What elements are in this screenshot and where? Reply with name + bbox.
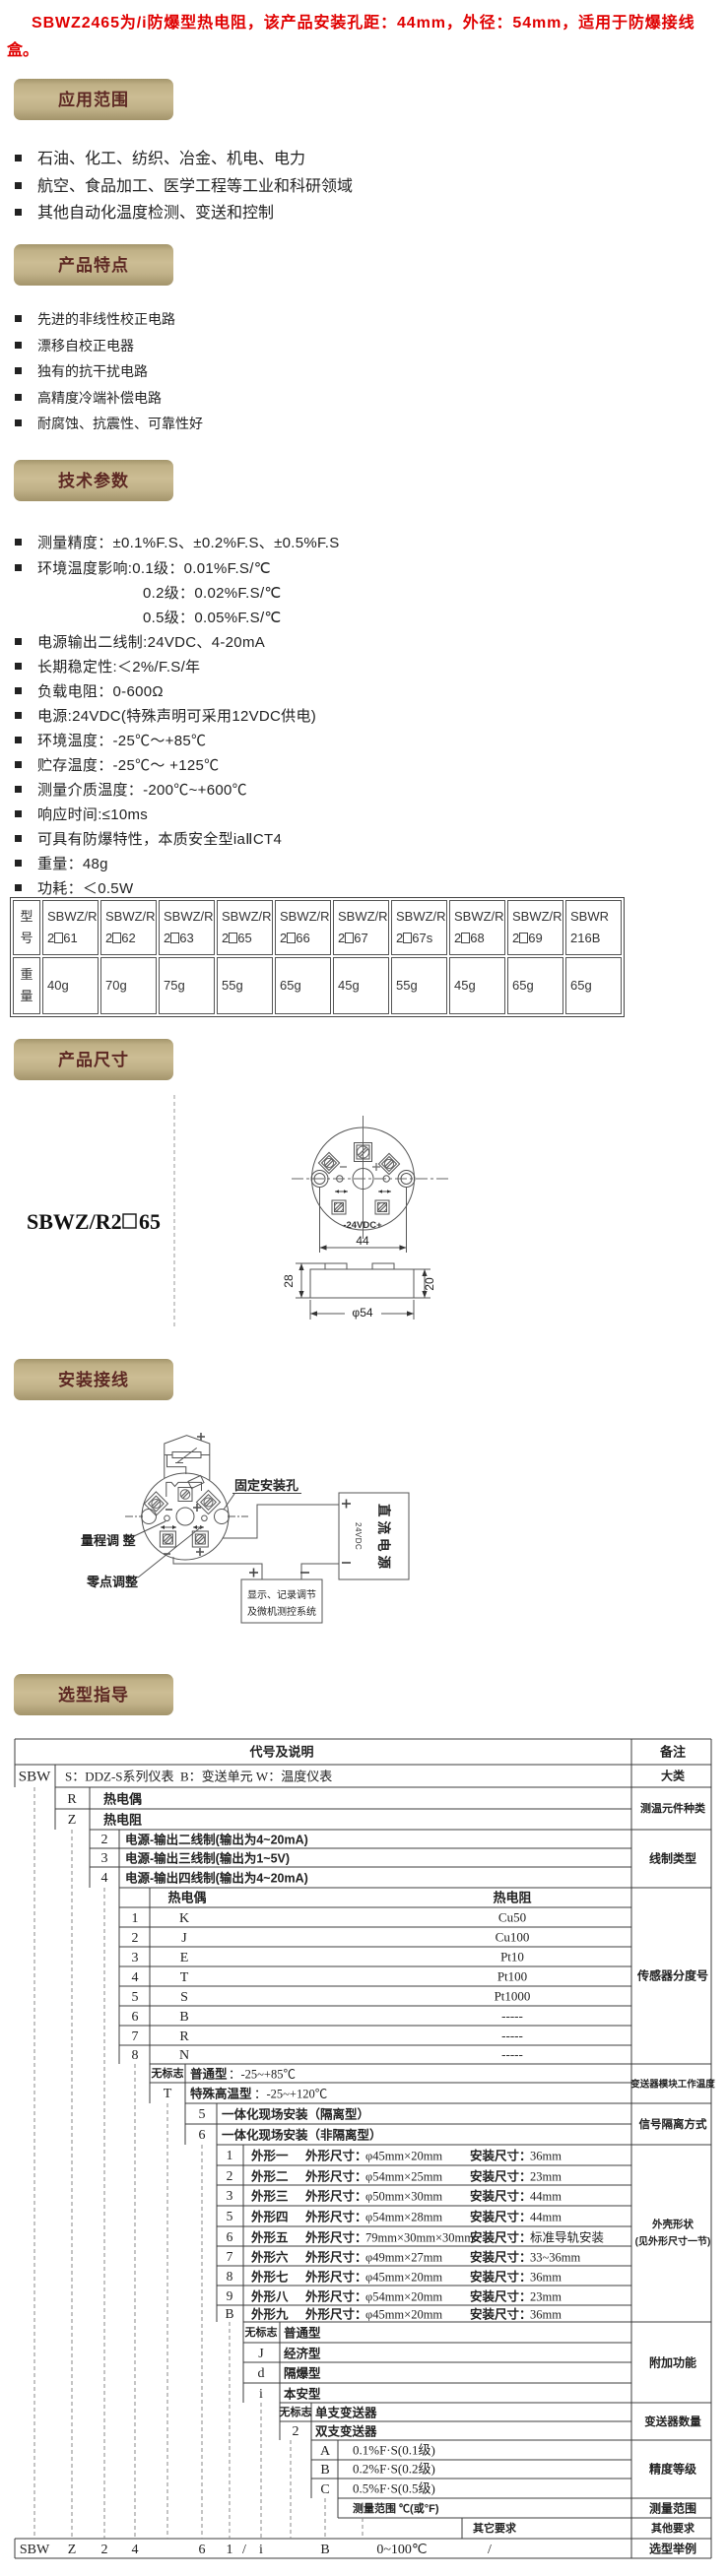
svg-text:安装尺寸：: 安装尺寸： — [470, 2169, 532, 2184]
svg-text:外形尺寸：: 外形尺寸： — [304, 2230, 367, 2245]
svg-text:i: i — [259, 2387, 263, 2402]
svg-text:2: 2 — [101, 1833, 108, 1847]
svg-text:φ49mm×27mm: φ49mm×27mm — [365, 2251, 442, 2265]
svg-text:6: 6 — [199, 2543, 206, 2557]
svg-text:K: K — [179, 1911, 189, 1926]
svg-text:5: 5 — [199, 2107, 206, 2122]
svg-text:显示、记录调节: 显示、记录调节 — [247, 1589, 316, 1601]
svg-text:-----: ----- — [501, 2029, 523, 2043]
svg-text:SBWZ/R2: SBWZ/R2 — [27, 1209, 122, 1234]
svg-text:33~36mm: 33~36mm — [530, 2251, 580, 2265]
svg-text:2: 2 — [227, 2168, 233, 2183]
svg-text:1: 1 — [132, 1911, 139, 1926]
svg-text:φ45mm×20mm: φ45mm×20mm — [365, 2150, 442, 2163]
svg-text:R: R — [67, 1792, 77, 1807]
svg-text:79mm×30mm×30mm: 79mm×30mm×30mm — [365, 2231, 474, 2245]
svg-text:本安型: 本安型 — [284, 2387, 321, 2402]
svg-text:7: 7 — [227, 2249, 233, 2264]
svg-text:1: 1 — [227, 2148, 233, 2162]
svg-text:Pt10: Pt10 — [500, 1950, 524, 1964]
svg-text:附加功能: 附加功能 — [649, 2354, 696, 2369]
svg-text:Z: Z — [68, 1813, 77, 1828]
svg-text:E: E — [180, 1951, 189, 1965]
svg-text:44mm: 44mm — [530, 2211, 562, 2224]
svg-text:φ54mm×28mm: φ54mm×28mm — [365, 2211, 442, 2224]
svg-text:23mm: 23mm — [530, 2290, 562, 2304]
svg-text:C: C — [320, 2482, 329, 2497]
svg-text:2: 2 — [101, 2543, 108, 2557]
svg-text:外形尺寸：: 外形尺寸： — [304, 2210, 367, 2224]
svg-text:0~100℃: 0~100℃ — [376, 2543, 427, 2557]
svg-text:5: 5 — [227, 2209, 233, 2223]
svg-text:65: 65 — [139, 1209, 161, 1234]
svg-text:外形尺寸：: 外形尺寸： — [304, 2307, 367, 2322]
svg-text:1: 1 — [227, 2543, 233, 2557]
svg-text:44mm: 44mm — [530, 2190, 562, 2204]
svg-text:Cu50: Cu50 — [498, 1910, 526, 1925]
svg-text:24VDC: 24VDC — [354, 1522, 363, 1550]
svg-text:外形七: 外形七 — [250, 2270, 289, 2285]
svg-text:T: T — [164, 2087, 172, 2101]
svg-text:安装尺寸：: 安装尺寸： — [470, 2307, 532, 2322]
svg-text:安装尺寸：: 安装尺寸： — [470, 2289, 532, 2304]
svg-text:3: 3 — [101, 1851, 108, 1866]
svg-text:外形尺寸：: 外形尺寸： — [304, 2149, 367, 2163]
svg-text:φ50mm×30mm: φ50mm×30mm — [365, 2190, 442, 2204]
svg-text:选型举例: 选型举例 — [649, 2541, 696, 2555]
svg-text:电源-输出三线制(输出为1~5V): 电源-输出三线制(输出为1~5V) — [125, 1851, 290, 1866]
svg-text:φ54: φ54 — [352, 1306, 372, 1320]
svg-text:外壳形状: 外壳形状 — [651, 2218, 694, 2230]
svg-text:测量范围: 测量范围 — [649, 2500, 696, 2515]
svg-text:量程调 整: 量程调 整 — [81, 1533, 137, 1548]
svg-text:外形尺寸：: 外形尺寸： — [304, 2189, 367, 2204]
svg-text:安装尺寸：: 安装尺寸： — [470, 2189, 532, 2204]
svg-text:-24VDC+: -24VDC+ — [343, 1220, 382, 1231]
svg-text:其他要求: 其他要求 — [651, 2521, 695, 2535]
svg-text:3: 3 — [132, 1951, 139, 1965]
svg-text:外形九: 外形九 — [250, 2307, 289, 2322]
svg-text:Pt100: Pt100 — [497, 1969, 527, 1984]
svg-text:5: 5 — [132, 1990, 139, 2005]
svg-text:0.1%F·S(0.1级): 0.1%F·S(0.1级) — [353, 2443, 435, 2458]
svg-text:B: B — [225, 2306, 233, 2321]
svg-text:外形二: 外形二 — [250, 2169, 289, 2184]
svg-text:热电阻: 热电阻 — [103, 1813, 142, 1828]
svg-text:-----: ----- — [501, 2009, 523, 2024]
svg-text:J: J — [181, 1931, 187, 1946]
svg-text:Cu100: Cu100 — [496, 1930, 530, 1945]
svg-text:-----: ----- — [501, 2047, 523, 2062]
svg-text:：-25~+120℃: ：-25~+120℃ — [254, 2088, 327, 2101]
svg-text:精度等级: 精度等级 — [649, 2461, 696, 2476]
svg-text:固定安装孔: 固定安装孔 — [234, 1478, 298, 1493]
svg-text:外形四: 外形四 — [250, 2210, 289, 2224]
svg-text:d: d — [258, 2366, 265, 2381]
svg-text:备注: 备注 — [659, 1745, 686, 1760]
svg-text:普通型: 普通型 — [284, 2326, 321, 2341]
svg-text:6: 6 — [227, 2229, 233, 2244]
svg-text:无标志: 无标志 — [151, 2066, 184, 2080]
svg-text:一体化现场安装（隔离型）: 一体化现场安装（隔离型） — [222, 2107, 369, 2122]
svg-text:Pt1000: Pt1000 — [495, 1989, 531, 2004]
svg-text:电源-输出四线制(输出为4~20mA): 电源-输出四线制(输出为4~20mA) — [125, 1871, 308, 1886]
svg-text:6: 6 — [132, 2010, 139, 2025]
svg-text:变送器数量: 变送器数量 — [644, 2415, 701, 2428]
svg-text:变送器模块工作温度: 变送器模块工作温度 — [630, 2078, 715, 2090]
svg-text:/: / — [242, 2543, 246, 2557]
svg-text:大类: 大类 — [661, 1768, 686, 1782]
svg-text:经济型: 经济型 — [284, 2347, 321, 2361]
svg-text:i: i — [259, 2543, 263, 2557]
svg-text:热电阻: 热电阻 — [493, 1891, 531, 1905]
svg-text:零点调整: 零点调整 — [86, 1575, 139, 1589]
svg-text:外形三: 外形三 — [250, 2189, 289, 2204]
svg-text:SBW: SBW — [20, 2543, 50, 2557]
svg-text:2: 2 — [132, 1931, 139, 1946]
svg-text:外形尺寸：: 外形尺寸： — [304, 2289, 367, 2304]
svg-text:36mm: 36mm — [530, 2308, 562, 2322]
svg-text:标准导轨安装: 标准导轨安装 — [530, 2230, 604, 2245]
svg-text:23mm: 23mm — [530, 2170, 562, 2184]
svg-text:R: R — [179, 2029, 189, 2044]
svg-text:安装尺寸：: 安装尺寸： — [470, 2149, 532, 2163]
svg-text:φ54mm×20mm: φ54mm×20mm — [365, 2290, 442, 2304]
svg-text:直流电源: 直流电源 — [376, 1504, 392, 1573]
svg-text:及微机测控系统: 及微机测控系统 — [247, 1605, 316, 1618]
svg-text:电源-输出二线制(输出为4~20mA): 电源-输出二线制(输出为4~20mA) — [125, 1833, 308, 1847]
svg-text:4: 4 — [101, 1871, 108, 1886]
svg-text:线制类型: 线制类型 — [649, 1850, 696, 1865]
svg-text:外形五: 外形五 — [250, 2230, 289, 2245]
svg-text:热电偶: 热电偶 — [167, 1891, 206, 1905]
svg-text:8: 8 — [132, 2048, 139, 2063]
svg-text:：-25~+85℃: ：-25~+85℃ — [229, 2068, 296, 2082]
svg-text:SBW: SBW — [19, 1769, 51, 1784]
svg-text:φ45mm×20mm: φ45mm×20mm — [365, 2271, 442, 2285]
svg-text:9: 9 — [227, 2288, 233, 2303]
svg-text:外形尺寸：: 外形尺寸： — [304, 2169, 367, 2184]
svg-text:测温元件种类: 测温元件种类 — [640, 1801, 706, 1815]
svg-text:φ54mm×25mm: φ54mm×25mm — [365, 2170, 442, 2184]
svg-text:/: / — [488, 2543, 492, 2557]
svg-text:44: 44 — [356, 1234, 369, 1248]
svg-text:安装尺寸：: 安装尺寸： — [470, 2230, 532, 2245]
svg-text:测量范围 ℃(或°F): 测量范围 ℃(或°F) — [353, 2501, 439, 2515]
svg-text:20: 20 — [423, 1277, 436, 1291]
svg-text:外形一: 外形一 — [250, 2149, 289, 2163]
svg-text:T: T — [180, 1970, 189, 1985]
svg-text:B: B — [179, 2010, 188, 2025]
svg-text:6: 6 — [199, 2128, 206, 2143]
svg-text:安装尺寸：: 安装尺寸： — [470, 2270, 532, 2285]
svg-text:A: A — [320, 2444, 331, 2459]
svg-text:隔爆型: 隔爆型 — [284, 2366, 321, 2381]
svg-text:热电偶: 热电偶 — [103, 1792, 142, 1807]
svg-text:4: 4 — [132, 1970, 139, 1985]
svg-text:0.5%F·S(0.5级): 0.5%F·S(0.5级) — [353, 2481, 435, 2496]
svg-text:普通型: 普通型 — [190, 2067, 228, 2082]
svg-text:信号隔离方式: 信号隔离方式 — [639, 2117, 707, 2131]
svg-text:双支变送器: 双支变送器 — [314, 2424, 377, 2439]
svg-text:4: 4 — [132, 2543, 139, 2557]
svg-text:一体化现场安装（非隔离型）: 一体化现场安装（非隔离型） — [222, 2128, 382, 2143]
svg-text:36mm: 36mm — [530, 2271, 562, 2285]
svg-text:外形六: 外形六 — [250, 2250, 289, 2265]
svg-text:无标志: 无标志 — [279, 2405, 312, 2418]
svg-text:φ45mm×20mm: φ45mm×20mm — [365, 2308, 442, 2322]
svg-text:S: S — [180, 1990, 188, 2005]
svg-text:外形八: 外形八 — [250, 2289, 289, 2304]
svg-text:B: B — [320, 2543, 329, 2557]
svg-text:无标志: 无标志 — [244, 2325, 278, 2339]
svg-text:3: 3 — [227, 2188, 233, 2203]
svg-text:代号及说明: 代号及说明 — [248, 1745, 313, 1760]
svg-text:J: J — [258, 2347, 264, 2361]
svg-text:8: 8 — [227, 2269, 233, 2284]
svg-text:B: B — [320, 2463, 329, 2478]
svg-text:2: 2 — [293, 2424, 299, 2439]
svg-text:0.2%F·S(0.2级): 0.2%F·S(0.2级) — [353, 2462, 435, 2477]
svg-text:外形尺寸：: 外形尺寸： — [304, 2250, 367, 2265]
svg-text:安装尺寸：: 安装尺寸： — [470, 2250, 532, 2265]
svg-text:28: 28 — [282, 1274, 296, 1288]
svg-text:特殊高温型: 特殊高温型 — [190, 2087, 252, 2101]
svg-text:单支变送器: 单支变送器 — [315, 2406, 377, 2420]
svg-text:7: 7 — [132, 2029, 139, 2044]
svg-text:S：DDZ-S系列仪表 B：变送单元 W：温度仪表: S：DDZ-S系列仪表 B：变送单元 W：温度仪表 — [65, 1770, 332, 1784]
svg-text:外形尺寸：: 外形尺寸： — [304, 2270, 367, 2285]
svg-text:安装尺寸：: 安装尺寸： — [470, 2210, 532, 2224]
svg-text:(见外形尺寸一节): (见外形尺寸一节) — [635, 2235, 711, 2248]
svg-text:N: N — [179, 2048, 189, 2063]
svg-text:传感器分度号: 传感器分度号 — [636, 1967, 708, 1982]
svg-text:Z: Z — [68, 2543, 77, 2557]
svg-text:36mm: 36mm — [530, 2150, 562, 2163]
svg-text:其它要求: 其它要求 — [473, 2521, 517, 2535]
